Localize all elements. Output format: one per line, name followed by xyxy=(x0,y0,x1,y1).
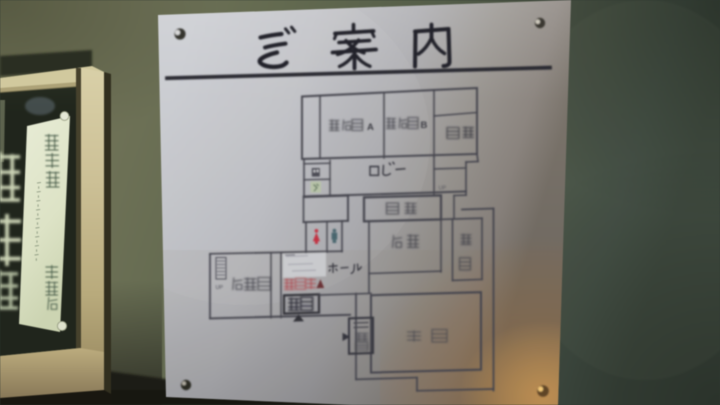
svg-text:B: B xyxy=(421,120,428,131)
svg-text:A: A xyxy=(367,122,374,133)
svg-text:UP: UP xyxy=(439,186,447,192)
svg-text:UP: UP xyxy=(216,285,224,291)
